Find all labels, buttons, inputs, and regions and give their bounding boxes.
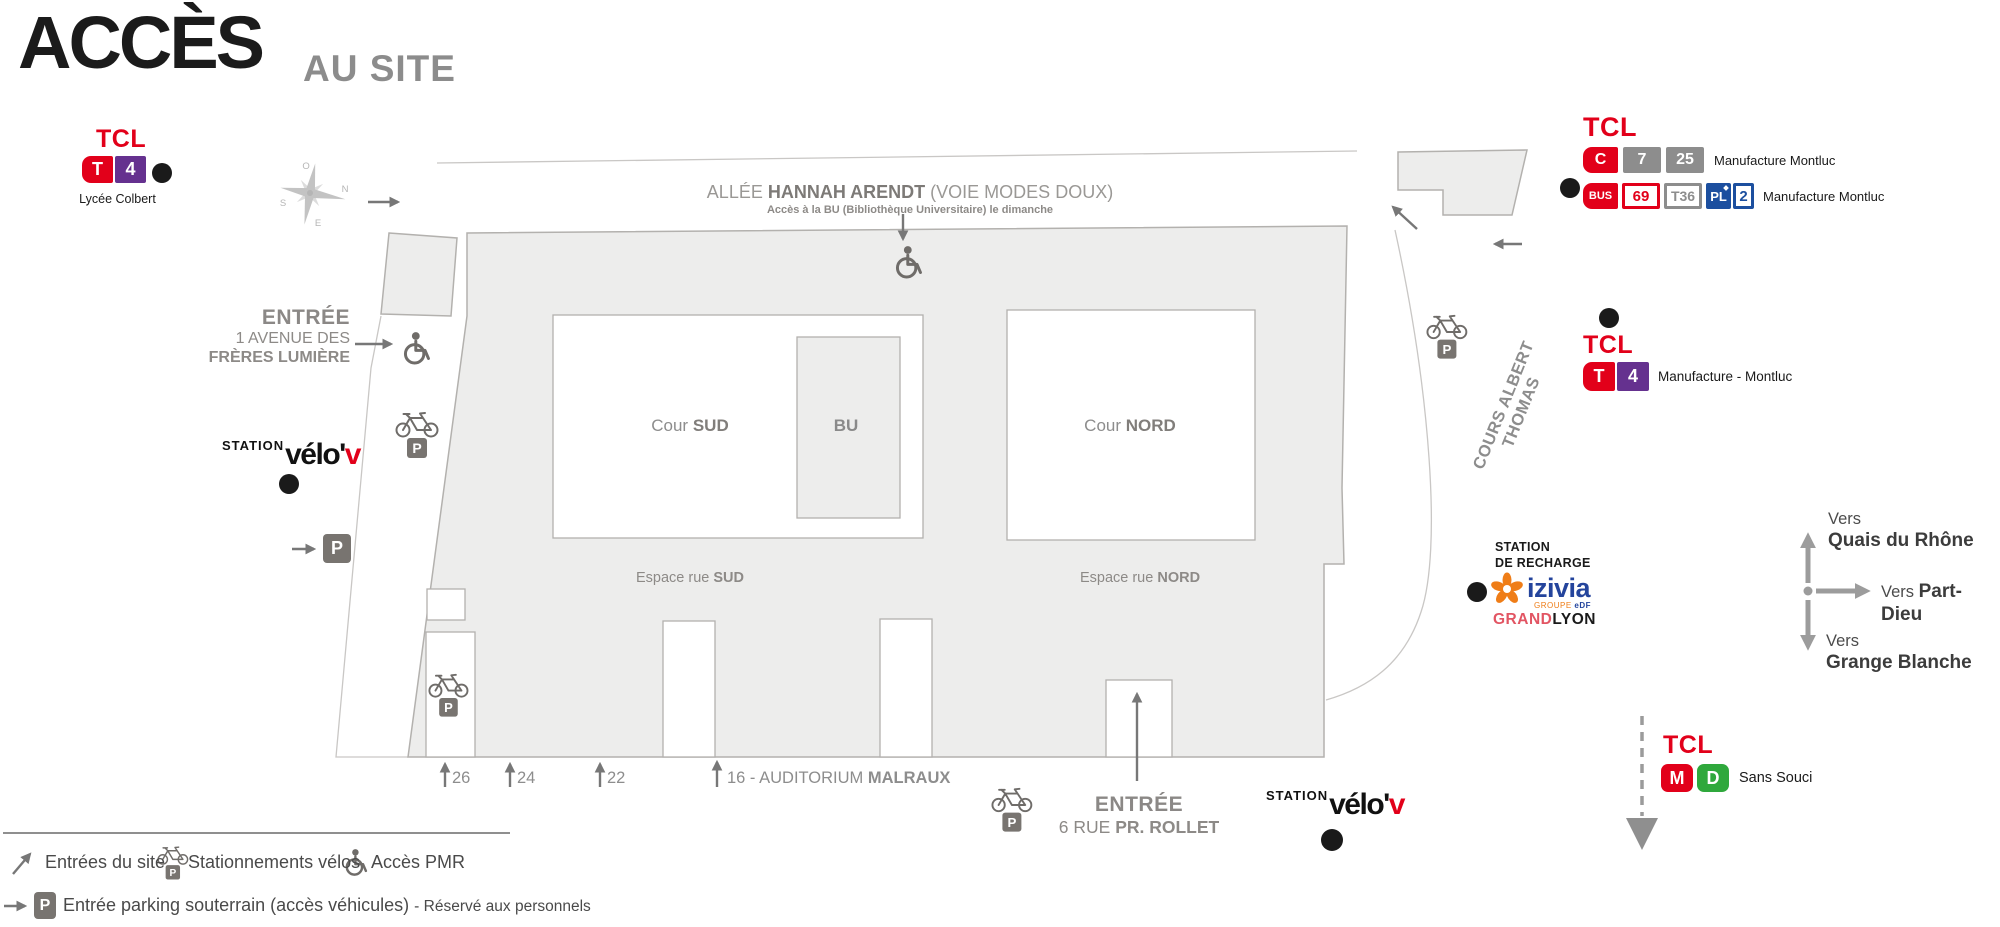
grand-word: GRAND [1493, 611, 1552, 628]
tcl-logo-sans-souci: TCL [1663, 733, 1713, 758]
sans-souci-badges: M D Sans Souci [1661, 764, 1812, 792]
stop-dot-colbert [152, 163, 172, 183]
compass-o: O [302, 161, 309, 172]
page-title: ACCÈS [18, 6, 262, 80]
rollet-bold: PR. ROLLET [1115, 817, 1219, 837]
t4-right-badges: T 4 Manufacture - Montluc [1583, 362, 1792, 391]
entree-lumiere-line1: 1 AVENUE DES [160, 330, 350, 348]
tcl-logo-t4: TCL [1583, 333, 1633, 358]
compass-n: N [342, 184, 349, 195]
grand-lyon-logo: GRANDLYON [1493, 611, 1596, 629]
rollet-pre: 6 RUE [1059, 817, 1115, 837]
tram-t4-badges-colbert: T 4 [82, 156, 146, 183]
vers-grange-blanche: Vers Grange Blanche [1826, 632, 1972, 675]
line-25-badge: 25 [1666, 147, 1704, 173]
line-c-badge: C [1583, 147, 1618, 173]
entree-lumiere-label: ENTRÉE 1 AVENUE DES FRÈRES LUMIÈRE [160, 306, 350, 367]
metro-m-badge: M [1661, 764, 1693, 792]
tcl-logo-montluc: TCL [1583, 114, 1637, 141]
arrow-northeast [1393, 207, 1417, 229]
compass-e: E [315, 218, 321, 229]
line-7-badge: 7 [1623, 147, 1661, 173]
legend-pmr-label: Accès PMR [371, 852, 465, 873]
auditorium-pre: 16 - AUDITORIUM [727, 769, 868, 787]
number-22: 22 [607, 769, 625, 788]
legend-parking-p-badge: P [34, 892, 56, 919]
allee-pre: ALLÉE [707, 182, 768, 202]
edf-word: eDF [1574, 601, 1591, 610]
corridor-22 [663, 621, 715, 757]
vers-south-bold: Grange Blanche [1826, 652, 1972, 675]
line-69-badge: 69 [1622, 183, 1660, 209]
recharge-line1: STATION [1495, 540, 1591, 556]
tram-4-badge: 4 [115, 156, 146, 183]
vers-east-pre: Vers [1881, 583, 1919, 601]
recharge-line2: DE RECHARGE [1495, 556, 1591, 572]
velov-name-black: vélo' [285, 438, 345, 471]
espace-nord-bold: NORD [1157, 570, 1200, 586]
vers-quais-du-rhone: Vers Quais du Rhône [1828, 510, 1974, 553]
cour-nord-pre: Cour [1084, 416, 1126, 435]
lyon-word: LYON [1552, 611, 1596, 628]
allee-hannah-arendt-label: ALLÉE HANNAH ARENDT (VOIE MODES DOUX) [560, 182, 1260, 203]
montluc-row2: BUS 69 T36 PL 2 Manufacture Montluc [1583, 183, 1884, 209]
entree-rollet-title: ENTRÉE [1014, 793, 1264, 817]
allee-note: Accès à la BU (Bibliothèque Universitair… [660, 204, 1160, 216]
corridor-rollet [1106, 680, 1172, 757]
pmr-icon-west [405, 332, 428, 363]
tram-4-badge-right: 4 [1617, 362, 1649, 391]
allee-post: (VOIE MODES DOUX) [925, 182, 1113, 202]
metro-d-badge: D [1697, 764, 1729, 792]
cour-sud-label: Cour SUD [615, 416, 765, 436]
velov-station-word: STATION [222, 438, 284, 453]
velov-name-red-v: v [345, 438, 360, 471]
stop-name-montluc-1: Manufacture Montluc [1714, 153, 1835, 168]
velov-station-word-south: STATION [1266, 788, 1328, 803]
izivia-logo-icon [1490, 573, 1524, 605]
velov-name: vélo'v [285, 438, 360, 471]
stop-name-t4-right: Manufacture - Montluc [1658, 369, 1792, 384]
legend-parking-label: Entrée parking souterrain (accès véhicul… [63, 895, 591, 916]
stop-dot-montluc [1560, 178, 1580, 198]
velov-name-red-v-south: v [1389, 788, 1404, 821]
entree-lumiere-title: ENTRÉE [160, 306, 350, 330]
cour-sud-pre: Cour [651, 416, 693, 435]
velov-station-west: STATIONvélo'v [222, 438, 360, 472]
entree-rollet-label: ENTRÉE 6 RUE PR. ROLLET [1014, 793, 1264, 837]
bike-parking-icon-west [397, 413, 438, 458]
legend-bikes-label: Stationnements vélos [188, 852, 360, 873]
cour-sud-bold: SUD [693, 416, 729, 435]
izivia-groupe-edf: GROUPE eDF [1534, 601, 1591, 610]
stop-name-sans-souci: Sans Souci [1739, 770, 1812, 786]
compass-s: S [280, 198, 286, 209]
bike-parking-icon-east [1427, 316, 1466, 359]
parking-entrance-p-badge: P [323, 534, 351, 563]
corridor-26 [426, 632, 475, 757]
pl-label: PL [1710, 189, 1727, 204]
espace-sud-pre: Espace rue [636, 570, 713, 586]
groupe-word: GROUPE [1534, 601, 1572, 610]
tcl-logo-colbert: TCL [96, 127, 146, 152]
line-pl-badge: PL [1706, 183, 1731, 209]
bus-badge: BUS [1583, 183, 1618, 209]
corridor-notch [427, 589, 465, 620]
building-northeast [1398, 150, 1527, 215]
cour-nord-bold: NORD [1126, 416, 1176, 435]
line-t36-badge: T36 [1664, 183, 1702, 209]
legend-parking-main: Entrée parking souterrain (accès véhicul… [63, 895, 414, 915]
vers-north-bold: Quais du Rhône [1828, 530, 1974, 553]
compass-rose-icon: O N S E [275, 158, 351, 231]
metro-direction-arrow-icon [1626, 716, 1658, 850]
number-16-auditorium: 16 - AUDITORIUM MALRAUX [727, 769, 950, 788]
vers-north-pre: Vers [1828, 510, 1974, 530]
velov-name-south: vélo'v [1329, 788, 1404, 821]
recharge-station-label: STATION DE RECHARGE [1495, 540, 1591, 571]
vers-center-dot [1804, 587, 1813, 596]
building-small-northwest [381, 233, 457, 316]
tram-t-badge: T [82, 156, 113, 183]
velov-station-south: STATIONvélo'v [1266, 788, 1404, 822]
espace-nord-pre: Espace rue [1080, 570, 1157, 586]
legend-entries-label: Entrées du site [45, 852, 165, 873]
site-access-map: P [0, 0, 2000, 927]
stop-name-colbert: Lycée Colbert [40, 192, 195, 206]
montluc-row1: C 7 25 Manufacture Montluc [1583, 147, 1835, 173]
izivia-wordmark: izivia [1527, 575, 1590, 602]
stop-dot-velov-west [279, 474, 299, 494]
line-2-badge: 2 [1733, 183, 1754, 209]
espace-rue-sud-label: Espace rue SUD [600, 570, 780, 586]
vers-south-pre: Vers [1826, 632, 1972, 652]
stop-name-montluc-2: Manufacture Montluc [1763, 189, 1884, 204]
stop-dot-velov-south [1321, 829, 1343, 851]
bu-label: BU [820, 416, 872, 436]
allee-name: HANNAH ARENDT [768, 182, 925, 202]
espace-sud-bold: SUD [713, 570, 744, 586]
page-subtitle: AU SITE [303, 50, 456, 87]
auditorium-bold: MALRAUX [868, 769, 951, 787]
legend-entry-arrow-icon [13, 854, 30, 874]
number-24: 24 [517, 769, 535, 788]
vers-arrows-icon [1808, 537, 1866, 646]
espace-rue-nord-label: Espace rue NORD [1050, 570, 1230, 586]
number-26: 26 [452, 769, 470, 788]
stop-dot-izivia [1467, 582, 1487, 602]
entree-lumiere-line2: FRÈRES LUMIÈRE [160, 349, 350, 367]
cour-nord-label: Cour NORD [1055, 416, 1205, 436]
entree-rollet-line: 6 RUE PR. ROLLET [1014, 817, 1264, 837]
velov-name-black-south: vélo' [1329, 788, 1389, 821]
vers-part-dieu: Vers Part-Dieu [1881, 581, 2000, 627]
corridor-mid [880, 619, 932, 757]
legend-parking-note: - Réservé aux personnels [414, 898, 591, 915]
stop-dot-t4 [1599, 308, 1619, 328]
tram-t-badge-right: T [1583, 362, 1615, 391]
